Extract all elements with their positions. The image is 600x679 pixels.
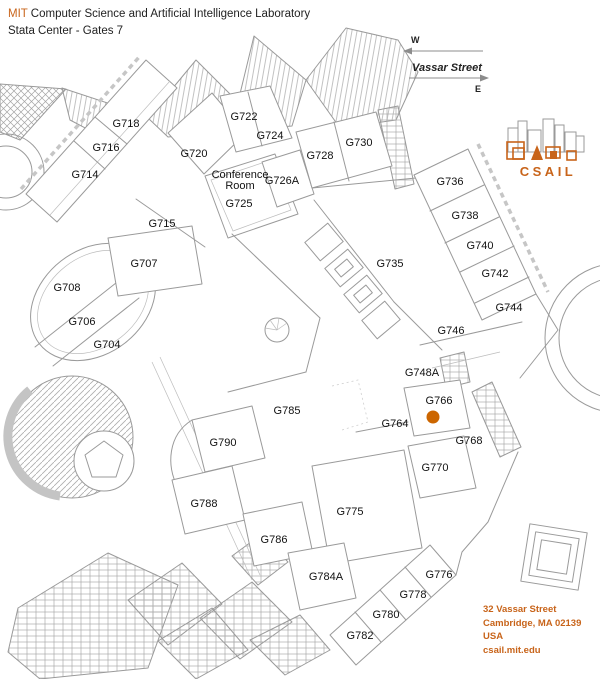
room-label-g735: G735 (377, 258, 404, 270)
room-label-g770: G770 (422, 462, 449, 474)
room-label-g744: G744 (496, 302, 523, 314)
room-label-g738: G738 (452, 210, 479, 222)
page-subtitle: Stata Center - Gates 7 (8, 23, 310, 40)
west-arrow-icon (403, 48, 412, 55)
west-label: W (411, 35, 420, 45)
east-label: E (475, 84, 481, 94)
csail-logo: CSAIL (498, 112, 590, 184)
street-name: Vassar Street (412, 62, 483, 74)
title-text: Computer Science and Artificial Intellig… (31, 8, 310, 20)
room-label-g724: G724 (257, 130, 284, 142)
room-label-g768: G768 (456, 435, 483, 447)
room-label-g707: G707 (131, 258, 158, 270)
room-label-g784a: G784A (309, 571, 344, 583)
street-sign: W Vassar Street E (393, 30, 503, 94)
room-label-g720: G720 (181, 148, 208, 160)
location-marker[interactable] (427, 411, 440, 424)
floor-plan: G718G716G714G720G722G724ConferenceRoomG7… (0, 0, 600, 679)
room-label-g706: G706 (69, 316, 96, 328)
room-label-g708: G708 (54, 282, 81, 294)
room-label-g715: G715 (149, 218, 176, 230)
room-label-g714: G714 (72, 169, 99, 181)
page-title: MIT Computer Science and Artificial Inte… (8, 6, 310, 23)
address-line: Cambridge, MA 02139 (483, 617, 581, 631)
header: MIT Computer Science and Artificial Inte… (8, 6, 310, 40)
room-label-g725: G725 (226, 198, 253, 210)
room-label-g788: G788 (191, 498, 218, 510)
room-label-g726a: G726A (265, 175, 300, 187)
website-text: csail.mit.edu (483, 644, 581, 658)
room-label-g766: G766 (426, 395, 453, 407)
address-line: USA (483, 630, 581, 644)
room-label-g740: G740 (467, 240, 494, 252)
room-label-g716: G716 (93, 142, 120, 154)
room-label-g786: G786 (261, 534, 288, 546)
address-block: 32 Vassar StreetCambridge, MA 02139USAcs… (483, 603, 581, 657)
room-label-g748a: G748A (405, 367, 440, 379)
room-label-g722: G722 (231, 111, 258, 123)
csail-wordmark: CSAIL (520, 164, 577, 179)
room-label-g776: G776 (426, 569, 453, 581)
room-label-g780: G780 (373, 609, 400, 621)
room-label-g764: G764 (382, 418, 409, 430)
room-label-g728: G728 (307, 150, 334, 162)
room-label-g718: G718 (113, 118, 140, 130)
room-label-g790: G790 (210, 437, 237, 449)
room-label-g730: G730 (346, 137, 373, 149)
room-label-g778: G778 (400, 589, 427, 601)
east-arrow-icon (480, 75, 489, 82)
room-label-g736: G736 (437, 176, 464, 188)
floor-plan-page: G718G716G714G720G722G724ConferenceRoomG7… (0, 0, 600, 679)
room-label-g782: G782 (347, 630, 374, 642)
csail-skyline-icon (507, 119, 584, 160)
room-label-g742: G742 (482, 268, 509, 280)
room-label-g785: G785 (274, 405, 301, 417)
room-label-g775: G775 (337, 506, 364, 518)
address-line: 32 Vassar Street (483, 603, 581, 617)
brand-mit: MIT (8, 8, 28, 20)
room-label-g704: G704 (94, 339, 121, 351)
room-label-g746: G746 (438, 325, 465, 337)
